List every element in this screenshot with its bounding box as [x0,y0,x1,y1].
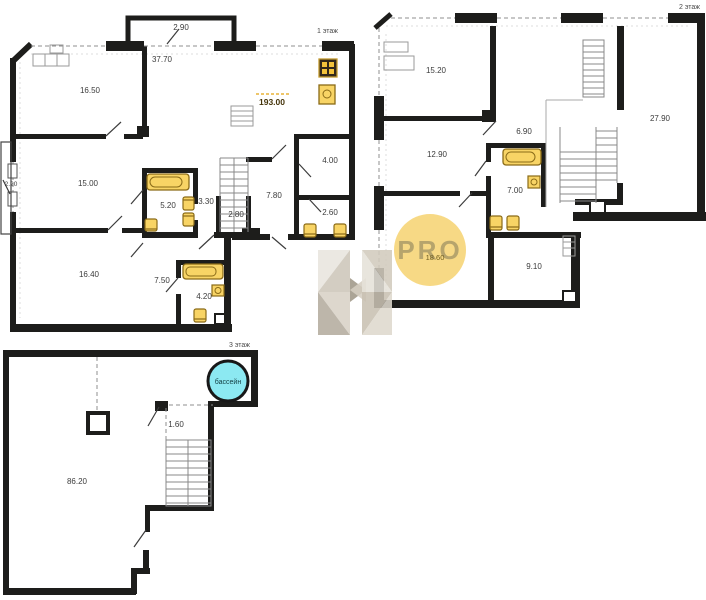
area-label: 2.90 [173,23,189,32]
floor2-labels: 2 этаж 15.20 27.90 6.90 12.90 7.00 9.10 [426,4,700,271]
area-label: 16.50 [80,86,101,95]
area-label: 15.00 [78,179,99,188]
void-edge [546,100,583,207]
floorplan-svg: 1 этаж 2.90 37.70 16.50 193.00 2.20 15.0… [0,0,706,600]
stairs-icon [560,127,617,203]
bathtub-icon [183,264,223,279]
floor1-tag: 1 этаж [317,28,338,35]
area-label-hidden: 18.60 [426,253,445,262]
floor2-tag: 2 этаж [679,4,700,11]
pool: бассейн [208,361,248,401]
stairs-icon [220,158,248,232]
area-label: 4.00 [322,156,338,165]
area-label: 1.60 [168,420,184,429]
sink-icon [528,176,540,188]
area-label: 4.20 [196,292,212,301]
area-label: 9.10 [526,262,542,271]
floor1-labels: 1 этаж 2.90 37.70 16.50 193.00 2.20 15.0… [5,23,339,301]
stairs-icon [583,40,604,97]
total-area-label: 193.00 [259,97,285,107]
area-label: 37.70 [152,55,173,64]
floorplan-canvas: 1 этаж 2.90 37.70 16.50 193.00 2.20 15.0… [0,0,706,600]
area-label: 2.20 [5,181,18,188]
column-pillar [88,413,108,433]
area-label: 27.90 [650,114,671,123]
stairs-icon [166,440,211,506]
bathtub-icon [503,149,541,165]
area-label: 7.50 [154,276,170,285]
toilet-icon [490,216,519,230]
area-label: 16.40 [79,270,100,279]
area-label: 86.20 [67,477,88,486]
area-label: 2.60 [322,208,338,217]
pool-label: бассейн [215,378,242,386]
area-label: 12.90 [427,150,448,159]
h-logo-watermark [318,250,392,335]
area-label: 7.80 [266,191,282,200]
floor1-fixtures [145,59,346,322]
floor3-windows [97,357,213,440]
floor3-tag: 3 этаж [229,342,250,349]
area-label: 3.30 [198,197,214,206]
bathtub-icon [147,174,189,190]
area-label: 6.90 [516,127,532,136]
floor1-doors [3,29,321,292]
area-label: 15.20 [426,66,447,75]
stove-icon [319,59,337,77]
area-label: 2.80 [228,210,244,219]
sink-icon [212,285,224,296]
area-label: 5.20 [160,201,176,210]
balcony-left-outline [1,142,11,234]
area-label: 7.00 [507,186,523,195]
pro-watermark: PRO 18.60 [394,214,466,286]
sink-icon [319,85,335,104]
